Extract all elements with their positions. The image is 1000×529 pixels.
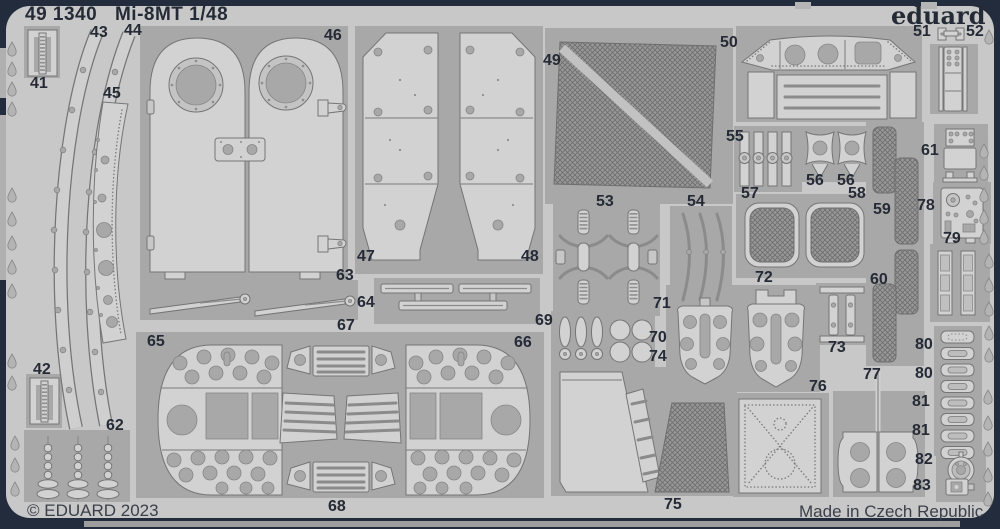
- part-number-label: 51: [913, 24, 931, 40]
- part-number-label: 68: [328, 499, 346, 515]
- part-number-label: 43: [90, 25, 108, 41]
- part-41: [28, 30, 57, 76]
- part-number-label: 72: [755, 270, 773, 286]
- part-number-label: 71: [653, 296, 671, 312]
- part-57: [745, 203, 799, 267]
- part-number-label: 82: [915, 452, 933, 468]
- part-number-label: 55: [726, 129, 744, 145]
- part-number-label: 69: [535, 313, 553, 329]
- part-50: [742, 36, 916, 119]
- part-number-label: 81: [912, 394, 930, 410]
- part-number-label: 80: [915, 366, 933, 382]
- part-number-label: 42: [33, 362, 51, 378]
- part-48: [460, 33, 535, 260]
- part-number-label: 48: [521, 249, 539, 265]
- part-68: [287, 462, 395, 492]
- part-number-label: 53: [596, 194, 614, 210]
- part-number-label: 58: [848, 186, 866, 202]
- part-number-label: 81: [912, 423, 930, 439]
- part-number-label: 44: [124, 23, 142, 39]
- part-71: [678, 298, 733, 384]
- part-number-label: 59: [873, 202, 891, 218]
- part-62: [37, 436, 119, 500]
- part-number-label: 41: [30, 76, 48, 92]
- part-number-label: 64: [357, 295, 375, 311]
- part-number-label: 45: [103, 86, 121, 102]
- part-72: [748, 290, 805, 387]
- part-number-label: 76: [809, 379, 827, 395]
- part-number-label: 60: [870, 272, 888, 288]
- part-number-label: 49: [543, 53, 561, 69]
- part-number-label: 56: [806, 173, 824, 189]
- part-52: [939, 47, 967, 111]
- part-number-label: 47: [357, 249, 375, 265]
- part-number-label: 46: [324, 28, 342, 44]
- part-number-label: 66: [514, 335, 532, 351]
- part-number-label: 77: [863, 367, 881, 383]
- part-number-label: 52: [966, 24, 984, 40]
- catalog-number: 49 1340: [25, 4, 97, 25]
- part-number-label: 70: [649, 330, 667, 346]
- part-number-label: 67: [337, 318, 355, 334]
- part-number-label: 74: [649, 349, 667, 365]
- part-42: [30, 378, 59, 424]
- pe-sheet-graphic: [0, 0, 1000, 529]
- part-number-label: 83: [913, 478, 931, 494]
- part-65: [158, 345, 282, 495]
- part-number-label: 57: [741, 186, 759, 202]
- part-number-label: 63: [336, 268, 354, 284]
- part-47: [363, 33, 438, 260]
- part-number-label: 73: [828, 340, 846, 356]
- part-number-label: 78: [917, 198, 935, 214]
- part-67: [287, 346, 395, 376]
- part-number-label: 80: [915, 337, 933, 353]
- part-number-label: 50: [720, 35, 738, 51]
- part-66: [406, 345, 530, 495]
- part-58: [806, 203, 864, 267]
- part-number-label: 54: [687, 194, 705, 210]
- part-number-label: 75: [664, 497, 682, 513]
- part-49: [554, 42, 716, 188]
- copyright-text: © EDUARD 2023: [27, 501, 159, 521]
- part-76: [739, 399, 821, 493]
- part-number-label: 65: [147, 334, 165, 350]
- part-number-label: 79: [943, 231, 961, 247]
- product-photo-pe-fret: 49 1340 Mi-8MT 1/48 eduard © EDUARD 2023…: [0, 0, 1000, 529]
- part-number-label: 62: [106, 418, 124, 434]
- made-in-text: Made in Czech Republic: [799, 502, 983, 522]
- part-number-label: 61: [921, 143, 939, 159]
